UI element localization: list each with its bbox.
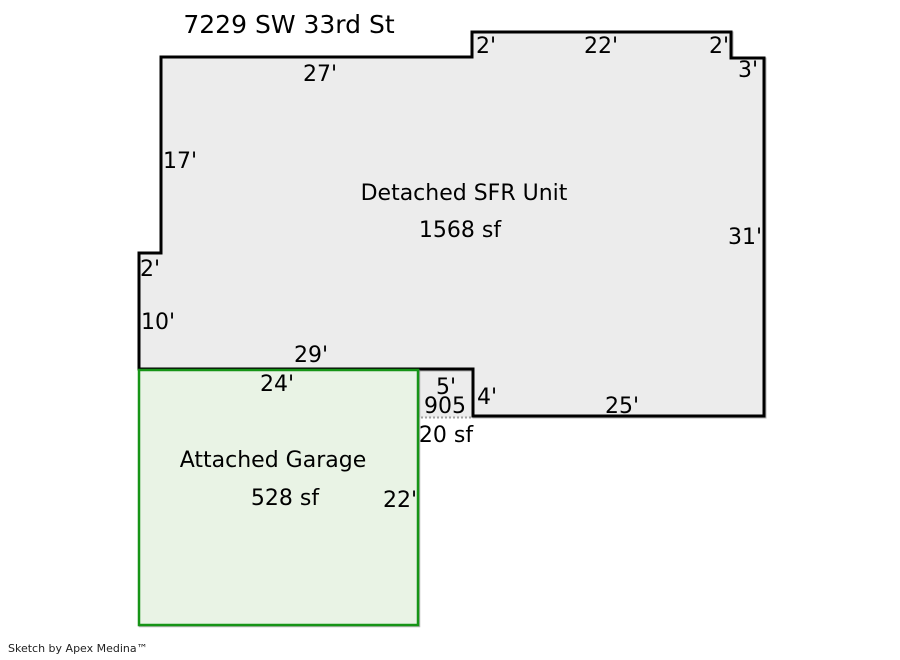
garage-area: 528 sf <box>251 486 320 511</box>
dim-sfr-top-left: 27' <box>303 62 337 87</box>
dim-sfr-top-middle: 22' <box>584 34 618 59</box>
sfr-area: 1568 sf <box>419 218 502 243</box>
sfr-label: Detached SFR Unit <box>361 181 568 206</box>
dim-sfr-bottom-right: 25' <box>605 394 639 419</box>
dim-sfr-top-right-jog: 3' <box>738 58 758 83</box>
garage-label: Attached Garage <box>180 448 366 473</box>
address-title: 7229 SW 33rd St <box>183 10 394 39</box>
watermark-credit: Sketch by Apex Medina™ <box>8 642 148 655</box>
dim-sfr-left-step: 2' <box>140 257 160 282</box>
dim-sfr-right-side: 31' <box>728 225 762 250</box>
dim-garage-right: 22' <box>383 488 417 513</box>
floorplan-sketch: 7229 SW 33rd St 27' 2' 22' 2' 3' 17' 31'… <box>0 0 900 660</box>
floorplan-sketch-page: 7229 SW 33rd St 27' 2' 22' 2' 3' 17' 31'… <box>0 0 900 660</box>
porch-area: 20 sf <box>419 423 474 448</box>
dim-sfr-top-step-down: 2' <box>709 34 729 59</box>
dim-sfr-top-step-up: 2' <box>476 34 496 59</box>
dim-porch-height: 4' <box>477 385 497 410</box>
porch-number: 905 <box>424 394 466 419</box>
dim-sfr-bottom-left: 29' <box>294 343 328 368</box>
dim-garage-top: 24' <box>260 372 294 397</box>
dim-sfr-left-lower: 10' <box>141 310 175 335</box>
dim-sfr-left-upper: 17' <box>163 149 197 174</box>
